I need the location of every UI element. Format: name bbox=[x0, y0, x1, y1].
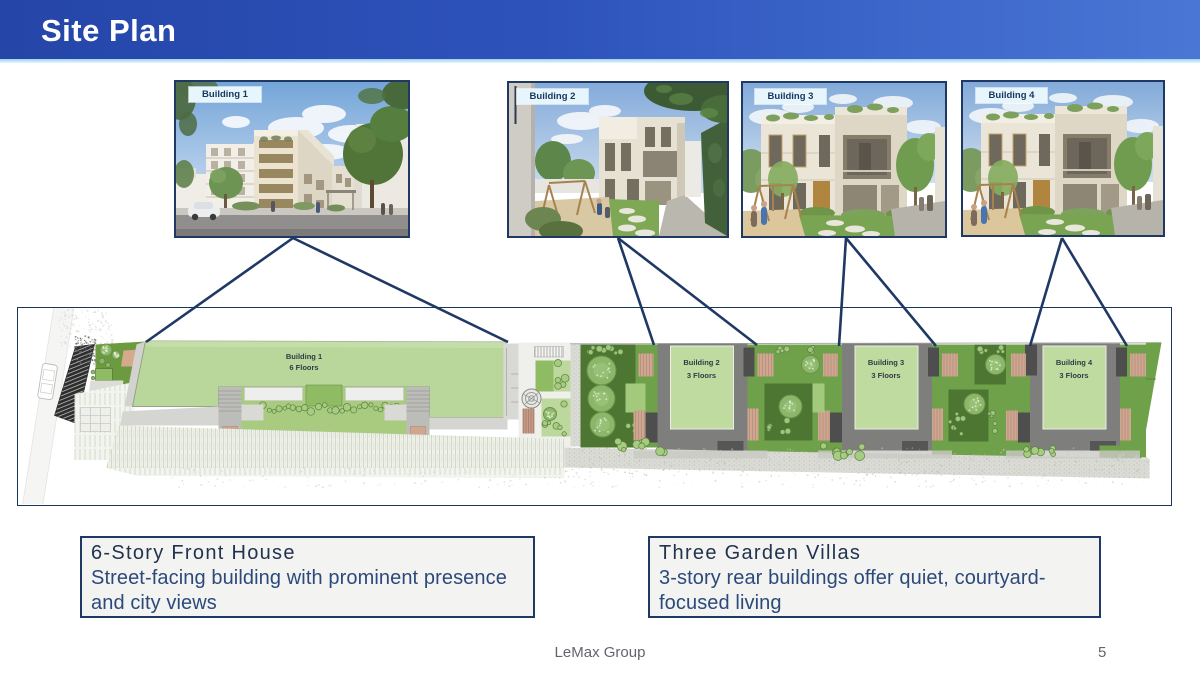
svg-text:Building 3: Building 3 bbox=[868, 358, 904, 367]
svg-text:Building 2: Building 2 bbox=[683, 358, 719, 367]
svg-text:Building 4: Building 4 bbox=[1056, 358, 1093, 367]
svg-text:3 Floors: 3 Floors bbox=[871, 371, 900, 380]
svg-text:3 Floors: 3 Floors bbox=[1059, 371, 1088, 380]
svg-text:3 Floors: 3 Floors bbox=[687, 371, 716, 380]
svg-text:6 Floors: 6 Floors bbox=[289, 363, 318, 372]
svg-text:Building 1: Building 1 bbox=[286, 352, 322, 361]
